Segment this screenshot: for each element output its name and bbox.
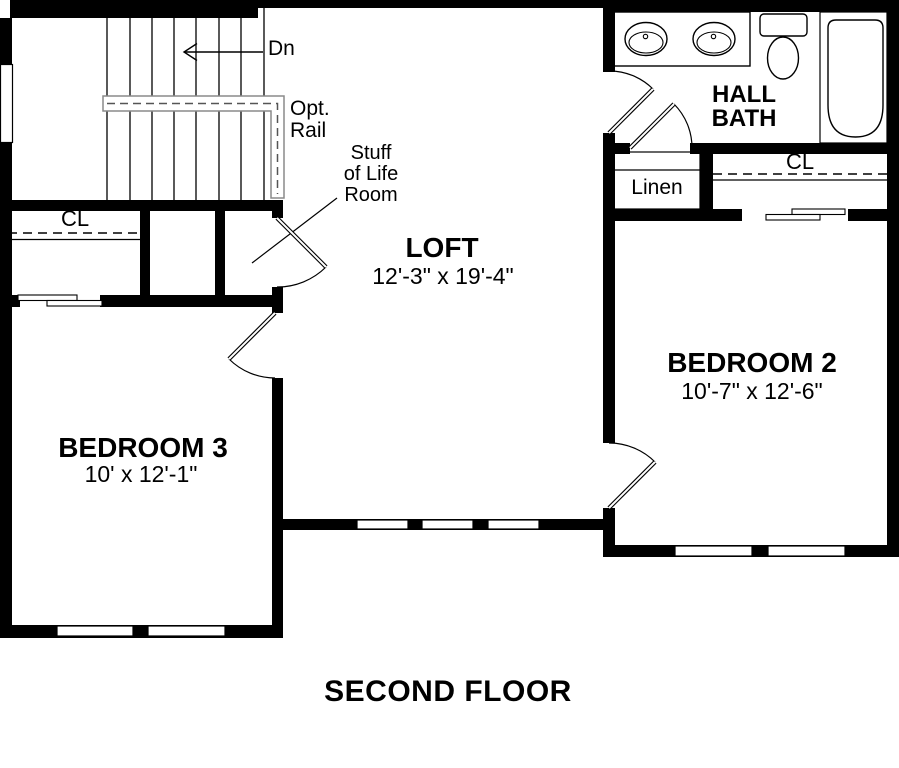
- bedroom2-door: [609, 443, 655, 508]
- window-loft-3: [488, 520, 539, 529]
- wall-bath-south-a: [615, 143, 630, 154]
- sink-left: [625, 23, 667, 56]
- sink-right: [693, 23, 735, 56]
- room-label-bedroom-2: BEDROOM 2: [652, 348, 852, 378]
- wall-interior-v1: [140, 211, 150, 307]
- stairs-down-label: Dn: [268, 38, 295, 60]
- toilet: [760, 14, 807, 79]
- wall-interior-v2: [215, 211, 225, 307]
- window-bed3-2: [148, 626, 225, 636]
- wall-top-bath: [605, 0, 899, 12]
- wall-bed2-north-a: [603, 209, 742, 221]
- bed3-closet-door-2: [47, 301, 102, 307]
- window-bed2-2: [768, 546, 845, 556]
- wall-right: [887, 0, 899, 557]
- optional-rail-label-line2: Rail: [290, 120, 330, 142]
- wall-bed2-north-b: [848, 209, 899, 221]
- bedroom3-closet-label: CL: [25, 207, 125, 230]
- room-dimensions-loft: 12'-3" x 19'-4": [343, 264, 543, 288]
- linen-door: [630, 104, 692, 148]
- bed2-closet-door-2: [766, 215, 820, 221]
- wall-top-loft: [258, 0, 605, 8]
- wall-east-main: [272, 378, 283, 638]
- wall-bed3-bottom: [0, 625, 283, 638]
- window-loft-1: [357, 520, 408, 529]
- floor-title: SECOND FLOOR: [298, 676, 598, 708]
- stuff-of-life-room-label: Stuff of Life Room: [311, 143, 431, 206]
- window-bed2-1: [675, 546, 752, 556]
- bath-door: [609, 71, 653, 133]
- room-label-bedroom-3: BEDROOM 3: [43, 433, 243, 463]
- wall-closetrow-bottom-b: [100, 295, 273, 307]
- bathtub: [820, 12, 887, 143]
- wall-closetrow-bottom-a: [0, 295, 20, 307]
- bedroom3-closet-shelf: [8, 233, 140, 240]
- window-loft-2: [422, 520, 473, 529]
- bedroom2-closet-label: CL: [750, 150, 850, 173]
- room-dimensions-bedroom-2: 10'-7" x 12'-6": [652, 379, 852, 403]
- optional-rail-label: Opt. Rail: [290, 98, 330, 142]
- floor-plan: Dn Opt. Rail Stuff of Life Room LOFT 12'…: [0, 0, 899, 768]
- window-stair-left: [1, 65, 13, 143]
- optional-rail-label-line1: Opt.: [290, 98, 330, 120]
- room-label-hall-bath: HALL BATH: [694, 83, 794, 131]
- wall-east-stub-b: [272, 287, 283, 313]
- room-dimensions-bedroom-3: 10' x 12'-1": [41, 462, 241, 486]
- bed3-closet-door-1: [18, 295, 77, 301]
- stuff-room-door: [277, 218, 326, 287]
- window-bed3-1: [57, 626, 133, 636]
- room-label-loft: LOFT: [342, 233, 542, 263]
- wall-top-left: [10, 0, 258, 18]
- wall-east-stub-a: [272, 200, 283, 218]
- wall-bath-west: [603, 8, 615, 72]
- bed2-closet-door-1: [792, 209, 845, 215]
- bedroom2-closet-shelf: [713, 174, 887, 180]
- bedroom3-door: [229, 313, 275, 378]
- linen-closet-label: Linen: [607, 177, 707, 199]
